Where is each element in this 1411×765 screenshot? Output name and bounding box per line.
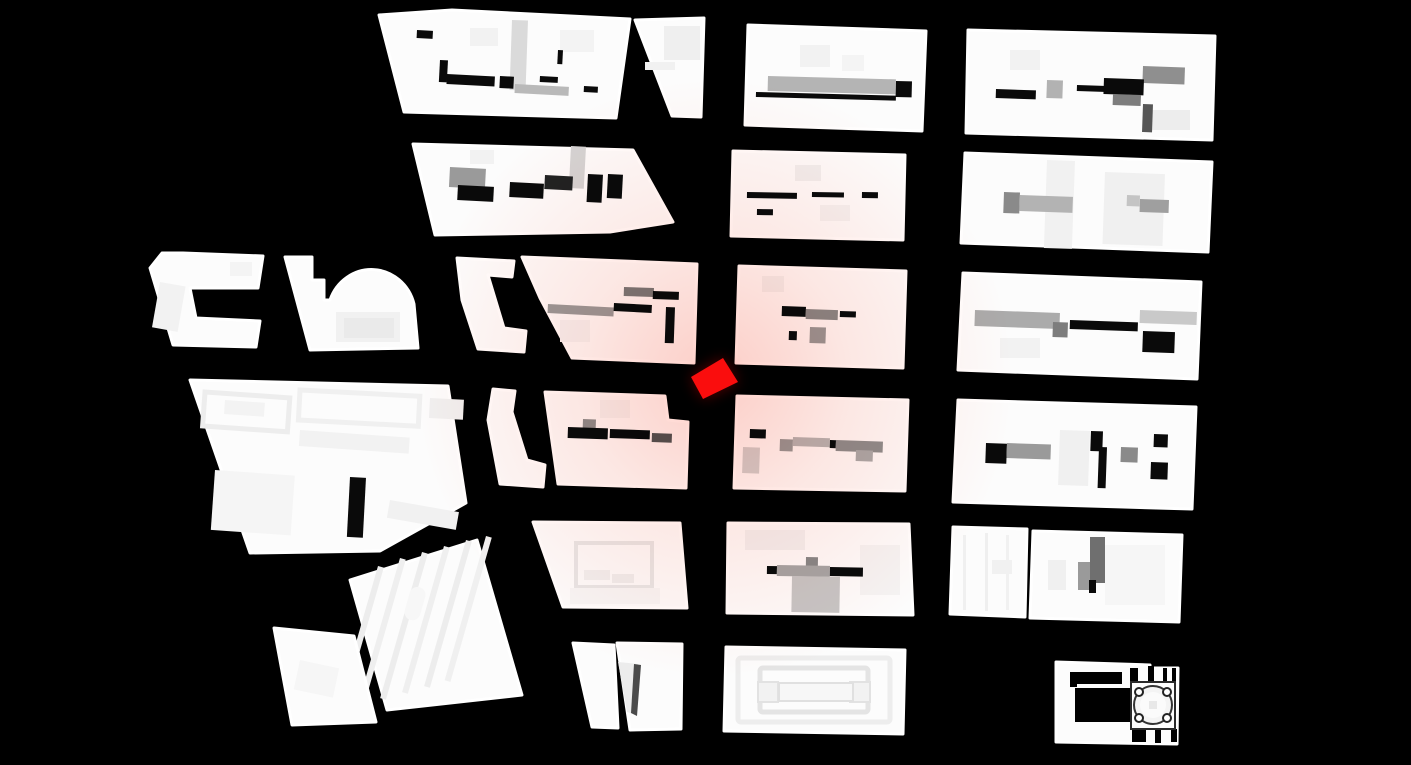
block-detail bbox=[840, 311, 856, 318]
block-r3-c3[interactable] bbox=[736, 266, 906, 368]
block-detail bbox=[1150, 110, 1190, 130]
city-map-canvas[interactable] bbox=[0, 0, 1411, 765]
block-detail bbox=[1135, 714, 1143, 722]
block-detail bbox=[795, 165, 821, 181]
block-detail bbox=[1127, 195, 1140, 206]
block-detail bbox=[1058, 430, 1090, 486]
block-detail bbox=[1155, 730, 1161, 743]
block-detail bbox=[499, 76, 514, 89]
block-detail bbox=[429, 398, 464, 420]
block-detail bbox=[1172, 668, 1176, 682]
block-detail bbox=[230, 262, 252, 276]
block-r3-c4[interactable] bbox=[958, 273, 1201, 379]
block-detail bbox=[1163, 714, 1171, 722]
block-detail bbox=[860, 545, 900, 595]
block-detail bbox=[806, 309, 838, 320]
block-r4-c2[interactable] bbox=[545, 392, 688, 488]
block-detail bbox=[610, 429, 650, 439]
block-detail bbox=[779, 683, 853, 701]
block-r5-c4[interactable] bbox=[1030, 531, 1182, 622]
block-r4-c3[interactable] bbox=[734, 396, 908, 491]
block-detail bbox=[1103, 78, 1144, 95]
block-r5-c4-narrow-footprint[interactable] bbox=[950, 527, 1027, 617]
block-detail bbox=[1163, 688, 1171, 696]
block-detail bbox=[1163, 668, 1167, 683]
block-detail bbox=[1171, 729, 1177, 742]
block-detail bbox=[812, 192, 844, 198]
block-detail bbox=[624, 287, 654, 297]
block-detail bbox=[809, 327, 826, 344]
block-r6-c2[interactable] bbox=[617, 643, 682, 730]
block-detail bbox=[607, 174, 623, 199]
block-detail bbox=[757, 209, 773, 215]
block-detail bbox=[1090, 537, 1105, 583]
block-r1-c3[interactable] bbox=[745, 25, 926, 131]
block-detail bbox=[1148, 666, 1154, 682]
block-detail bbox=[560, 30, 594, 52]
block-detail bbox=[782, 306, 806, 317]
block-detail bbox=[985, 443, 1007, 464]
block-detail bbox=[570, 588, 660, 604]
block-detail bbox=[417, 30, 433, 39]
block-detail bbox=[830, 440, 836, 448]
block-detail bbox=[1010, 50, 1040, 70]
block-detail bbox=[1075, 688, 1132, 722]
block-detail bbox=[1000, 338, 1040, 358]
block-detail bbox=[862, 192, 878, 198]
block-r4-left-large[interactable] bbox=[190, 380, 466, 553]
block-detail bbox=[439, 60, 448, 82]
block-r5-c4-narrow[interactable] bbox=[950, 527, 1027, 617]
block-detail bbox=[1078, 562, 1090, 590]
block-detail bbox=[1120, 447, 1138, 463]
block-detail bbox=[1006, 443, 1050, 460]
block-detail bbox=[1019, 195, 1073, 213]
block-detail bbox=[1089, 580, 1096, 593]
block-detail bbox=[1003, 192, 1020, 214]
block-detail bbox=[1048, 560, 1066, 590]
block-r1-c4[interactable] bbox=[966, 30, 1215, 140]
block-detail bbox=[747, 192, 797, 199]
block-r2-c1[interactable] bbox=[413, 144, 673, 235]
block-r6-c4-rotunda[interactable] bbox=[1056, 662, 1178, 744]
block-detail bbox=[1105, 545, 1165, 605]
block-detail bbox=[544, 175, 573, 190]
block-detail bbox=[1140, 310, 1197, 325]
block-detail bbox=[793, 437, 830, 447]
block-detail bbox=[996, 89, 1036, 99]
block-detail bbox=[612, 574, 634, 583]
block-detail bbox=[600, 400, 630, 418]
block-detail bbox=[992, 560, 1012, 574]
block-r2-c3[interactable] bbox=[961, 153, 1212, 252]
block-detail bbox=[568, 427, 608, 439]
block-detail bbox=[584, 570, 610, 580]
block-detail bbox=[645, 62, 675, 70]
block-detail bbox=[1135, 688, 1143, 696]
block-detail bbox=[1074, 672, 1122, 684]
block-detail bbox=[1070, 672, 1077, 687]
block-detail bbox=[789, 331, 797, 340]
block-detail bbox=[540, 76, 558, 83]
block-detail bbox=[470, 150, 494, 164]
block-detail bbox=[509, 182, 544, 199]
block-detail bbox=[211, 470, 295, 535]
block-detail bbox=[344, 318, 394, 338]
block-detail bbox=[653, 291, 679, 300]
block-detail bbox=[985, 533, 988, 611]
block-detail bbox=[780, 439, 793, 451]
block-detail bbox=[820, 205, 850, 221]
block-r2-c3-footprint[interactable] bbox=[961, 153, 1212, 252]
block-detail bbox=[758, 682, 778, 702]
block-detail bbox=[742, 447, 760, 474]
block-detail bbox=[587, 174, 603, 203]
block-detail bbox=[560, 320, 590, 342]
block-detail bbox=[963, 535, 966, 610]
block-detail bbox=[800, 45, 830, 67]
block-r6-c3-library[interactable] bbox=[724, 647, 905, 734]
block-detail bbox=[1098, 447, 1107, 488]
block-r2-c2[interactable] bbox=[731, 151, 905, 240]
block-detail bbox=[1052, 322, 1068, 338]
block-detail bbox=[777, 565, 830, 577]
block-detail bbox=[665, 307, 675, 343]
block-detail bbox=[224, 400, 265, 417]
block-detail bbox=[762, 276, 784, 292]
block-detail bbox=[1046, 80, 1063, 99]
block-detail bbox=[974, 310, 1060, 329]
block-detail bbox=[1077, 85, 1107, 92]
block-detail bbox=[896, 81, 912, 97]
block-detail bbox=[1154, 434, 1168, 447]
block-detail bbox=[557, 50, 563, 64]
block-detail bbox=[1140, 199, 1169, 213]
block-detail bbox=[856, 450, 873, 462]
block-detail bbox=[1150, 462, 1168, 480]
block-detail bbox=[791, 576, 840, 613]
block-r1-c1[interactable] bbox=[379, 10, 630, 118]
block-detail bbox=[1113, 94, 1141, 106]
block-r4-c4[interactable] bbox=[953, 400, 1196, 509]
block-detail bbox=[584, 86, 598, 93]
block-detail bbox=[457, 185, 494, 202]
block-detail bbox=[1142, 331, 1175, 353]
block-detail bbox=[347, 477, 366, 538]
block-detail bbox=[842, 55, 864, 71]
city-map bbox=[0, 0, 1411, 765]
block-detail bbox=[664, 26, 700, 60]
block-detail bbox=[470, 28, 498, 46]
block-detail bbox=[767, 566, 777, 574]
block-detail bbox=[745, 530, 805, 550]
block-detail bbox=[1142, 66, 1185, 84]
block-r5-c3[interactable] bbox=[727, 523, 913, 615]
block-detail bbox=[830, 567, 863, 577]
block-r1-c1-footprint[interactable] bbox=[379, 10, 630, 118]
block-detail bbox=[1142, 104, 1153, 132]
block-detail bbox=[750, 429, 766, 439]
block-detail bbox=[1132, 729, 1146, 742]
block-detail bbox=[1149, 701, 1157, 709]
block-detail bbox=[652, 433, 672, 443]
